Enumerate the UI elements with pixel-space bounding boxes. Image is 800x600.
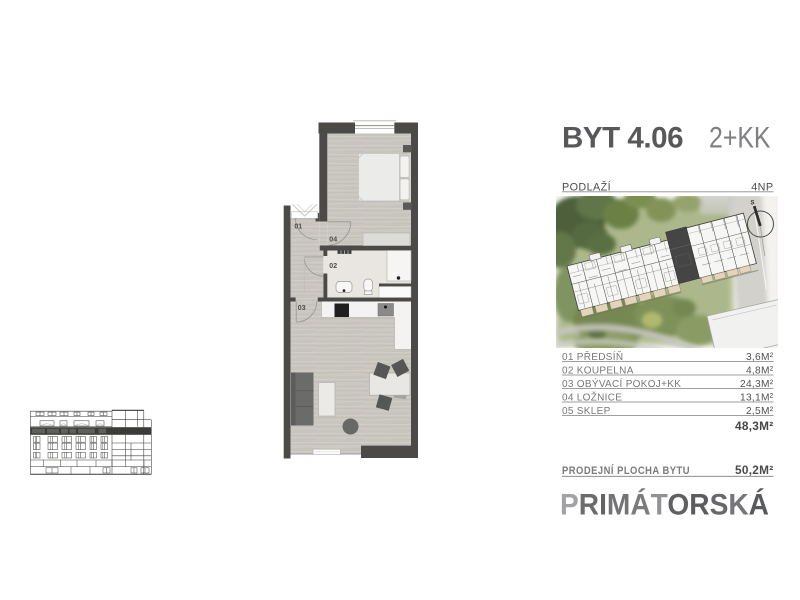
svg-text:PRODEJNÍ PLOCHA BYTU: PRODEJNÍ PLOCHA BYTU — [562, 464, 690, 477]
svg-text:48,3M²: 48,3M² — [735, 419, 774, 433]
svg-text:S: S — [750, 201, 754, 207]
svg-text:BYT 4.06: BYT 4.06 — [562, 121, 684, 154]
svg-text:04: 04 — [329, 236, 337, 243]
svg-text:02: 02 — [329, 263, 337, 270]
svg-text:01: 01 — [294, 223, 302, 230]
svg-text:PRIMÁTORSKÁ: PRIMÁTORSKÁ — [560, 488, 769, 522]
svg-text:50,2M²: 50,2M² — [735, 463, 774, 477]
svg-text:2+KK: 2+KK — [709, 121, 771, 154]
svg-text:03: 03 — [298, 305, 306, 312]
